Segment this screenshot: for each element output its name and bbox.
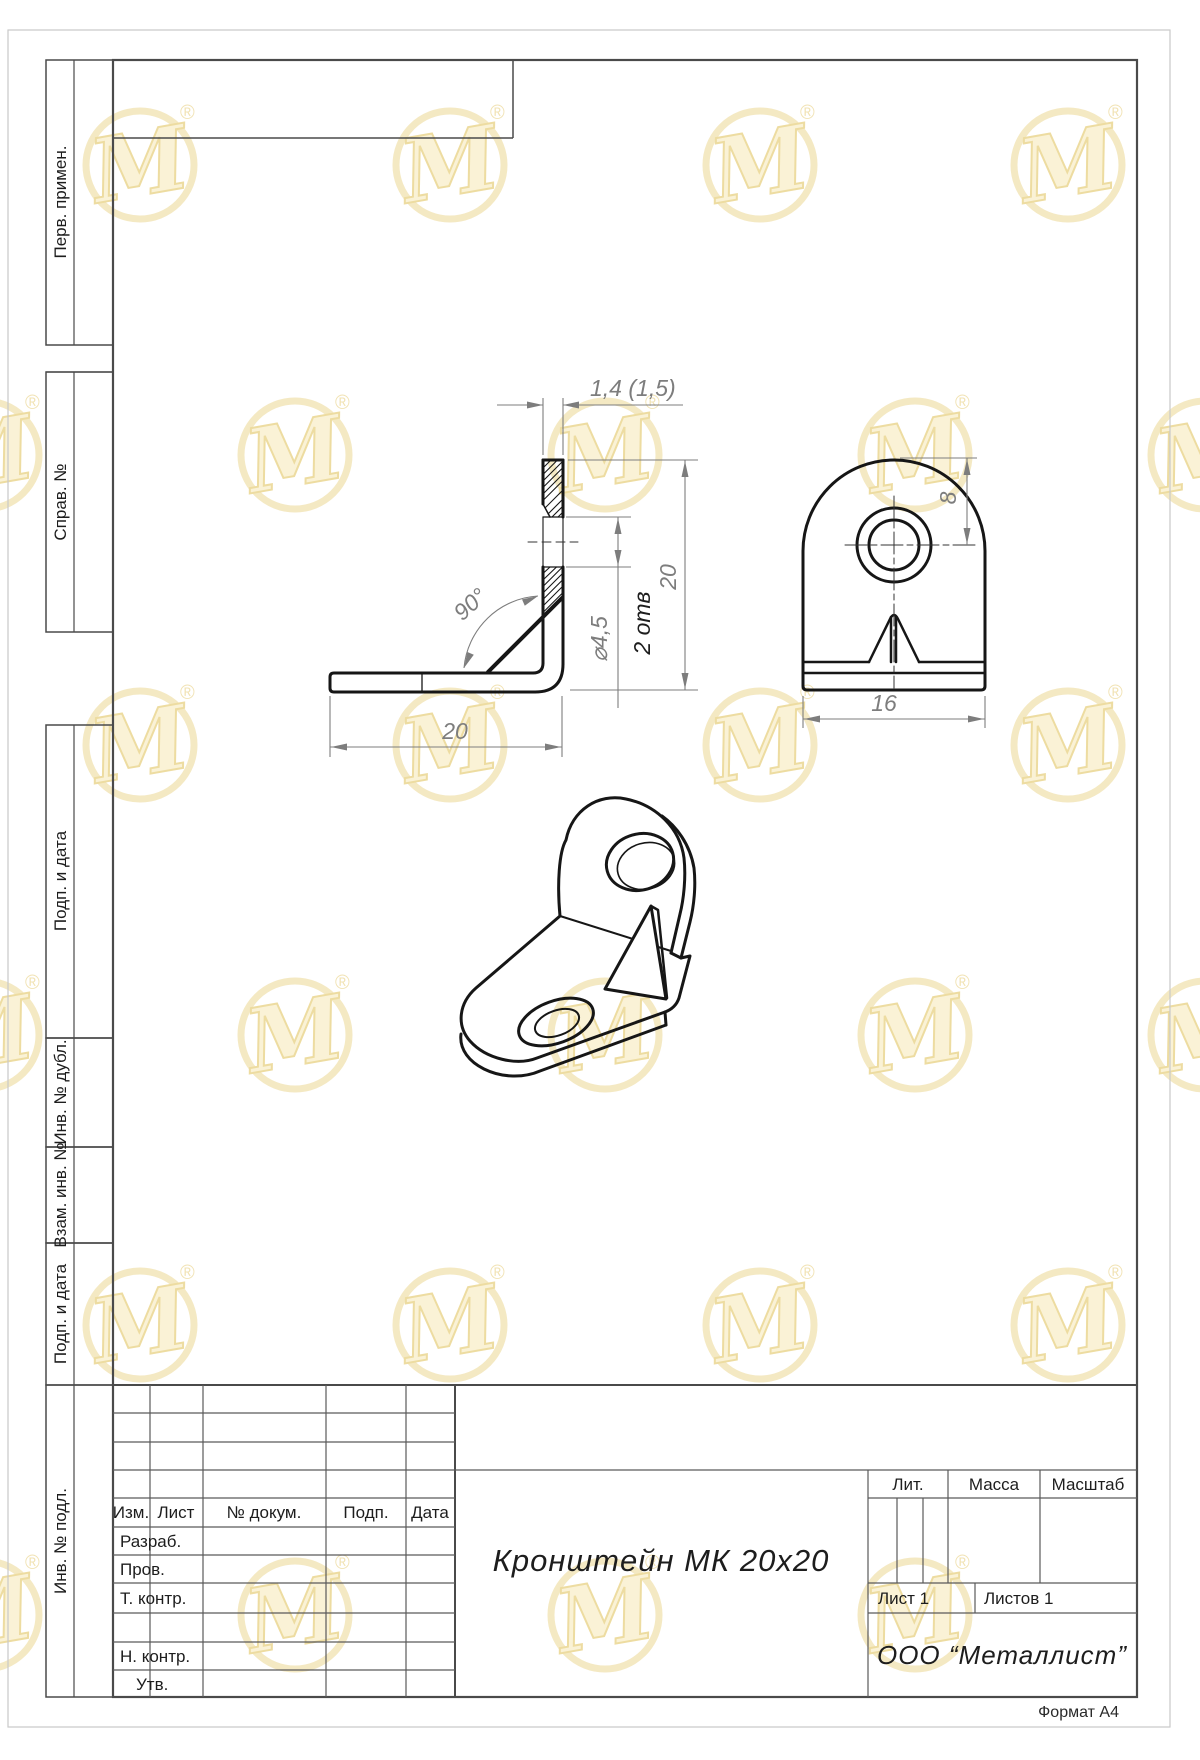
role-prov: Пров. [120,1560,165,1579]
dim-thickness: 1,4 (1,5) [590,375,676,401]
iso-rib [605,906,666,999]
rev-header-izm: Изм. [113,1503,149,1522]
rev-header-podp: Подп. [343,1503,388,1522]
part-title: Кронштейн МК 20х20 [493,1543,830,1578]
mass-label: Масса [969,1475,1020,1494]
dim-plate-width: 16 [871,690,897,716]
scale-label: Масштаб [1052,1475,1125,1494]
role-razrab: Разраб. [120,1532,181,1551]
watermark-layer [0,102,1200,1674]
side-label: Справ. № [51,463,70,540]
rev-header-dokum: № докум. [227,1503,302,1522]
rev-header-list: Лист [158,1503,195,1522]
dim-hole-note: 2 отв [629,591,655,655]
role-utv: Утв. [136,1675,168,1694]
drawing-frame [113,60,1137,1697]
iso-plate-face [559,798,685,953]
dim-hole-dia: ⌀4,5 [586,616,612,662]
dim-height: 20 [655,564,681,591]
iso-plate-hole [600,826,681,899]
side-label: Подп. и дата [51,1263,70,1364]
drawing-sheet: M ® [0,0,1200,1760]
side-label: Взам. инв. № [51,1142,70,1247]
dim-angle: 90° [448,583,491,626]
side-label: Подп. и дата [51,830,70,931]
rev-header-data: Дата [411,1503,449,1522]
side-label: Инв. № подл. [51,1488,70,1594]
page-frame [8,30,1170,1727]
side-label: Инв. № дубл. [51,1039,70,1144]
sheet-svg: M ® [0,0,1200,1760]
dim-hole-offset: 8 [935,491,961,504]
outer-border [8,30,1170,1727]
lit-label: Лит. [892,1475,923,1494]
sheet-number: Лист 1 [878,1589,929,1608]
role-nkontr: Н. контр. [120,1647,190,1666]
side-column-labels: Перв. примен. Справ. № Подп. и дата Инв.… [51,145,70,1593]
section-view [330,460,578,692]
role-tkontr: Т. контр. [120,1589,186,1608]
dim-width: 20 [441,718,468,744]
format-label: Формат А4 [1038,1704,1119,1721]
sheets-total: Листов 1 [984,1589,1053,1608]
company-name: ООО “Металлист” [877,1640,1127,1670]
side-label: Перв. примен. [51,145,70,258]
section-outline [330,460,563,692]
